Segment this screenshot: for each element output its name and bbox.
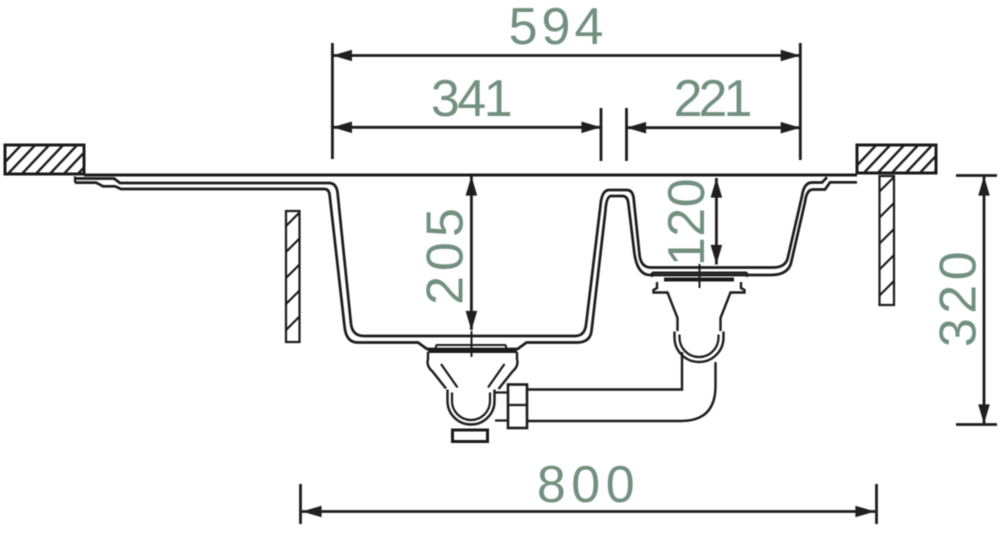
svg-text:594: 594 <box>509 0 608 56</box>
svg-text:221: 221 <box>674 70 751 128</box>
svg-text:120: 120 <box>658 178 716 266</box>
svg-text:205: 205 <box>417 203 475 305</box>
svg-text:800: 800 <box>537 456 640 514</box>
svg-text:341: 341 <box>431 70 511 128</box>
svg-text:320: 320 <box>930 247 988 347</box>
